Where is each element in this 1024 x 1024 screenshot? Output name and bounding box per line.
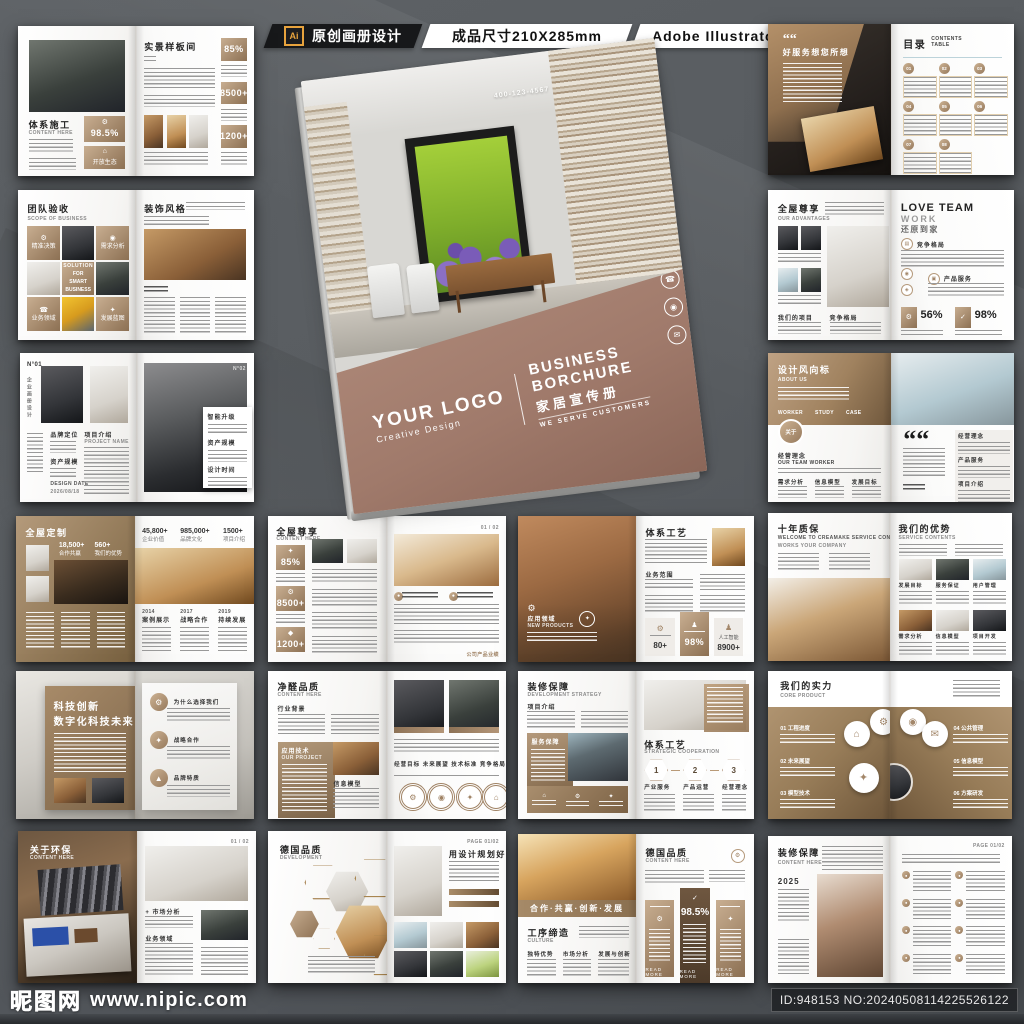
tools-icon [657,624,664,633]
text-lines [722,794,746,813]
cover-title-content: YOUR LOGO Creative Design BUSINESS BORCH… [367,339,656,461]
timeline-col [97,612,126,650]
left-title: 好服务想您所想 [783,47,850,58]
stat-card-2: 98% [680,612,710,656]
section-1-row: ▤ 竞争格局 [901,238,945,250]
drawer-item-blue [33,927,69,946]
brochure-cover-mockup: 400-123-4567 YOUR LOGO Creative Design [326,58,682,494]
card-label: 信息模型 [936,633,969,640]
title-block: BUSINESS BORCHURE 家居宣传册 WE SERVE CUSTOME… [527,340,652,428]
thumb-photo [801,268,821,292]
stat-label: 企业价值 [142,535,168,543]
page-right: 体系工艺 STRATEGIC COOPERATION 1 2 3 产业服务 产品… [636,671,754,819]
text-lines [531,749,565,783]
text-lines [449,861,499,882]
thumb-photo [26,576,50,602]
text-lines [913,871,951,891]
section-heading-lines [144,286,168,292]
quote-icon: ““ [903,432,929,448]
diagram-circle-icon: ✦ [849,763,879,793]
page-left: N°01 企业画册设计 品牌定位 资产规模 DESIGN DATE 2026/0… [20,353,137,502]
text-lines [901,250,1004,268]
text-lines [215,297,246,333]
brown-bar [449,901,499,907]
stat-label: 合作共赢 [59,549,85,557]
left-subtitle-1: WELCOME TO CREAMAKE SERVICE CONTENTS [778,535,890,541]
spread-team-acceptance: 团队验收 SCOPE OF BUSINESS 精准决策 需求分析 SOLUTIO… [18,190,254,340]
text-lines [709,870,744,882]
hex-connector [671,770,680,771]
hex-number: 3 [731,766,735,775]
left-subtitle: DEVELOPMENT STRATEGY [527,692,601,698]
tag-study: STUDY [815,410,834,416]
spread-tech-innovation: 科技创新 数字化科技未来 ⚙ 为什么选择我们 ✦ 战略合作 [16,671,254,819]
grid-photo [466,951,499,977]
page-right: PAGE 01/02 ● ● ● ● ● ● ● ● [890,836,1012,983]
band-item [561,786,594,813]
text-lines [645,539,706,562]
card-photo [899,610,932,632]
reason-label: 战略合作 [174,736,200,744]
divider [514,373,525,424]
timeline-line [394,775,499,776]
text-lines [208,477,248,488]
section-subtitle: OUR TEAM WORKER [778,460,835,466]
page-left: 设计风向标 ABOUT US WORKER STUDY CASE 关于 经营理念… [768,353,891,502]
stat-value: 85% [281,557,301,567]
stat-value: 1200+ [277,639,305,649]
text-lines [145,943,193,975]
toc-number: 02 [939,63,950,74]
col-2-label: 市场分析 [563,950,589,958]
text-lines [527,959,555,977]
spread-renovation-guarantee: 装修保障 DEVELOPMENT STRATEGY 项目介绍 服务保障 体系工艺… [518,671,754,819]
diagram-circle-icon: ⚙ [870,709,890,735]
right-title: 用设计规划好家 [449,849,506,860]
grid-photo [394,922,427,948]
card-title: 服务保障 [531,737,569,746]
left-subtitle: OUR ADVANTAGES [778,216,830,222]
card-label: 项目开发 [973,633,1006,640]
band-item [594,786,627,813]
strength-item-1: 01 工程进度 [780,724,835,743]
text-lines [936,642,969,656]
dot-icon: ● [902,954,910,962]
stat-icon-box [901,307,917,328]
tile-analysis: 需求分析 [96,226,128,260]
timeline-label-4: 竞争格局 [480,760,506,768]
strength-item-5: 05 信息模型 [953,757,1008,776]
feature-row: 产品服务 [955,454,1013,479]
solution-line: SOLUTION [63,263,93,269]
check-icon [692,895,698,902]
text-lines [144,297,175,333]
stone-wall-photo [135,548,254,603]
gear-icon [906,314,912,321]
stat-box: 98.5% [84,116,125,142]
stat-card-1: 80+ [645,618,675,656]
wardrobe-photo [90,366,127,423]
text-lines [308,956,375,974]
stat-value: 8900+ [717,643,739,652]
hex-step-3: 3 [722,759,746,781]
stat-label: 品牌文化 [180,535,209,543]
feature-3-label: 项目介绍 [958,482,984,488]
caption-lines [778,253,821,264]
interior-photo [167,115,186,148]
thumb-photo [347,539,378,562]
text-lines [829,553,870,571]
toc-number: 07 [903,139,914,150]
toc-item: 05 [939,101,971,136]
spread-cooperation-culture: 合作·共赢·创新·发展 工序缔造 CULTURE 独特优势 市场分析 发展与创新… [518,834,754,983]
caption-lines [532,800,555,806]
subtitle: CORE PRODUCT [780,693,825,699]
year-label: 持续发展 [218,615,246,624]
robot-icon [725,623,732,632]
text-lines [780,767,835,776]
text-lines [928,283,1004,298]
toc-number: 03 [974,63,985,74]
reason-label: 品牌特质 [174,774,200,782]
dot-icon: ● [955,899,963,907]
card-label: 需求分析 [899,633,932,640]
toc-entry-lines [939,114,973,136]
item-label: 方案研发 [961,791,983,797]
text-lines [394,739,499,754]
left-subtitle: SCOPE OF BUSINESS [27,216,87,222]
toc-entry-lines [939,152,973,174]
text-lines [778,553,819,571]
sea-view-room-photo [568,733,628,780]
thumb-photo [778,268,798,292]
section-2-label: 业务领域 [145,934,173,943]
section-asset: 资产规模 [50,457,78,466]
caption-band [394,727,444,733]
toc-entry-lines [974,114,1008,136]
year-col-1: 2014 案例展示 [142,609,170,624]
text-lines [953,799,1008,808]
nodes-icon: ✦ [150,731,168,749]
left-subtitle: CONTENT HERE [778,860,822,866]
text-lines [966,899,1004,919]
wide-interior-photo [144,229,245,280]
page-right: 经营目标 未来展望 技术标准 竞争格局 ⚙ ◉ ✦ ⌂ [387,671,506,819]
metric-lines [778,939,810,974]
title-line-2: 数字化科技未来 [54,713,135,728]
office-photo [827,226,889,307]
text-lines [276,614,305,624]
cover-icon-column [660,268,688,345]
text-lines [966,954,1004,974]
feature-2-label: 产品服务 [958,458,984,464]
card-title: 应用技术 [282,746,332,755]
project-card: 应用技术 OUR PROJECT [278,742,336,818]
year-label: 战略合作 [180,615,208,624]
diagram-circle-icon: ⌂ [844,721,870,747]
text-lines [903,484,925,491]
slogan-band: 合作·共赢·创新·发展 [518,900,636,918]
doc-icon: ▤ [901,238,913,250]
side-stat-3: 1200+ [221,125,247,148]
text-lines [221,109,247,121]
text-lines [581,711,628,729]
text-lines [144,56,156,61]
page-right: 45,800+ 企业价值 985,000+ 品牌文化 1500+ 项目介绍 20… [135,516,254,662]
slogan: 合作·共赢·创新·发展 [530,903,624,914]
timeline-icon-2: ◉ [427,783,455,811]
text-lines [958,442,1010,454]
card-photo [973,559,1006,581]
header-size-label: 成品尺寸210X285mm [452,26,602,46]
spread-about-environment: 关于环保 CONTENT HERE 01 / 02 + 市场分析 业务领域 [18,831,256,983]
timeline-label-2: 未来展望 [423,760,449,768]
quote-icon: ““ [783,36,797,44]
text-lines [282,764,328,812]
thumb-photo [778,226,798,250]
page-right: 德国品质 CONTENT HERE ⚙ READ MORE 98.5% READ… [636,834,754,983]
stat-label: 人工智能 [719,634,739,641]
tile-grid: 精准决策 需求分析 SOLUTION FOR SMART BUSINESS 业务… [27,226,128,331]
spread-our-strength: 我们的实力 CORE PRODUCT 01 工程进度 02 未来展望 03 模型… [768,671,1012,819]
stat-value: 18,500+ [59,542,85,549]
text-lines [683,794,714,813]
toc-subtitle-2: TABLE [931,42,962,48]
bath-photo [712,528,745,566]
preview-canvas: Ai 原创画册设计 成品尺寸210X285mm Adobe Illustrato… [0,0,1024,1024]
white-panel: ⚙ 为什么选择我们 ✦ 战略合作 ▲ 品牌特质 [142,683,237,810]
right-title: 体系工艺 [645,526,687,539]
page-right: 01 / 02 ● ● 公司产品业绩 [387,516,506,662]
phone-icon [39,307,48,314]
header-band [890,671,1012,707]
text-lines [822,846,883,870]
white-chair [367,263,405,319]
about-badge: 关于 [778,419,804,445]
hex-label-1: 产业服务 [644,783,670,791]
stat-value: 1200+ [220,131,248,141]
left-title: 装修保障 [778,846,820,859]
kitchen-photo [394,534,499,587]
page-left: 体系施工 CONTENT HERE 98.5% 开放生态 [18,26,136,176]
section-1-label: + 市场分析 [145,907,180,916]
badge-label: 关于 [785,428,796,436]
case-number-right: N°02 [233,366,246,372]
section-title: 经营理念 [778,451,806,460]
stat-value: 8500+ [220,88,248,98]
read-more: READ MORE [680,969,711,979]
left-section-1: 我们的项目 [778,313,813,322]
check-icon [960,314,966,321]
spread-german-quality-hex: 德国品质 DEVELOPMENT PAGE 01/02 用设计规划好家 [268,831,506,983]
text-lines [142,627,171,653]
text-lines [84,447,128,495]
section-1-label: 竞争格局 [917,240,945,249]
text-lines [50,441,76,453]
bottom-shade [0,1014,1024,1024]
text-lines [973,591,1006,605]
page-left: 净醛品质 CONTENT HERE 行业背景 应用技术 OUR PROJECT … [268,671,387,819]
service-item: ● [902,954,951,977]
timeline-col [61,612,90,650]
nipic-url: www.nipic.com [90,989,248,1012]
tile-business: 业务领域 [27,297,59,331]
spread-ten-year-warranty: 十年质保 WELCOME TO CREAMAKE SERVICE CONTENT… [768,513,1012,661]
toc-item: 07 [903,139,935,174]
caption-lines [650,635,671,639]
brown-panel: 科技创新 数字化科技未来 [45,686,135,810]
gear-icon [287,589,293,596]
page-left: 全屋尊享 CONTENT HERE 85% 8500+ 1200+ [268,516,387,662]
page-left: 全屋定制 18,500+ 合作共赢 560+ 我们的优势 [16,516,135,662]
section-subtitle: CULTURE [527,938,553,944]
pillar-card-1: READ MORE [645,900,673,978]
case-number-left: N°01 [27,362,42,368]
text-lines [167,785,230,798]
stat-box-3: 1200+ [276,627,305,652]
page-left: 我们的实力 CORE PRODUCT 01 工程进度 02 未来展望 03 模型… [768,671,890,819]
left-title: 团队验收 [27,202,69,215]
right-title-en-1: LOVE TEAM [901,202,974,214]
caption-lines [599,801,622,807]
col-3-label: 发展与创新 [598,950,631,958]
page-left: 团队验收 SCOPE OF BUSINESS 精准决策 需求分析 SOLUTIO… [18,190,136,340]
spread-whole-house-custom: 全屋定制 18,500+ 合作共赢 560+ 我们的优势 45,800+ 企业价… [16,516,254,662]
left-subtitle: CONTENT HERE [29,130,73,136]
info-card: 智能升级 资产规模 设计时间 [203,407,253,489]
left-stat-2: 560+ 我们的优势 [95,542,123,557]
advantage-card: 服务保证 [936,559,969,606]
spark-icon [110,307,116,314]
feature-row: 经营理念 [955,430,1013,455]
grid-photo [430,951,463,977]
text-lines [780,734,835,743]
ai-logo-icon: Ai [284,26,304,46]
title-line-1: 科技创新 [54,698,100,713]
page-left: 装修保障 CONTENT HERE 2025 [768,836,890,983]
bullet-heading [457,592,493,599]
text-lines [144,95,215,107]
dark-kitchen-photo [54,560,128,604]
service-item: ● [955,954,1004,977]
text-lines [333,788,378,810]
chart-icon: ▲ [150,769,168,787]
text-lines [936,591,969,605]
stat-value: 98.5% [681,907,709,918]
strength-item-2: 02 未来展望 [780,757,835,776]
bedroom-photo [333,742,378,775]
tile-label: 业务领域 [32,316,56,322]
text-lines [644,794,675,813]
side-stat-1: 85% [221,38,247,61]
text-lines [278,714,326,735]
solution-line: FOR [73,271,84,277]
door-photo [394,846,442,916]
curtain-room-photo [817,874,883,977]
text-lines [180,297,211,333]
text-lines [913,926,951,946]
service-item: ● [902,926,951,949]
brown-bar [449,889,499,895]
spread-clean-quality: 净醛品质 CONTENT HERE 行业背景 应用技术 OUR PROJECT … [268,671,506,819]
text-lines [830,322,882,334]
stat-box-1: 85% [276,545,305,570]
text-lines [527,711,574,729]
card-title: 智能升级 [208,412,248,421]
text-lines [649,929,670,962]
hex-label-2: 产品运营 [683,783,709,791]
stat-value: 98% [685,637,705,647]
section-label: 业务范围 [645,570,673,579]
item-label: 公共管理 [961,726,983,732]
text-lines [312,612,377,630]
page-right: PAGE 01/02 用设计规划好家 [387,831,506,983]
spread-craft-system: 应用领域 NEW PRODUCTS ✦ 体系工艺 业务范围 80+ [518,516,754,662]
page-number: 01 / 02 [481,525,499,531]
header-product-segment: Ai 原创画册设计 [264,24,423,48]
right-stat-1: 45,800+ 企业价值 [142,528,168,543]
caption-lines [778,295,821,306]
card-item-2: 设计时间 [208,465,248,474]
text-lines [913,899,951,919]
right-stat-2: 985,000+ 品牌文化 [180,528,209,543]
text-lines [201,947,247,976]
divider [903,57,1001,58]
home-icon [103,148,107,155]
page-right: ““ 经营理念 产品服务 项目介绍 [891,353,1014,502]
header-product-label: 原创画册设计 [312,26,402,46]
hex-number: 2 [693,766,697,775]
text-lines [955,330,1002,338]
toc-number: 04 [903,101,914,112]
dot-icon: ● [955,954,963,962]
photo-grid [394,922,499,977]
white-chair [406,263,440,314]
text-lines [221,152,247,166]
year-col-2: 2017 战略合作 [180,609,208,624]
toc-item: 04 [903,101,935,136]
drawer-photo [24,913,132,976]
section-2-label: 信息模型 [333,779,361,788]
solution-line: BUSINESS [65,287,91,293]
right-subtitle: STRATEGIC COOPERATION [644,749,719,755]
item-number: 04 [953,726,959,732]
stat-value: 560+ [95,542,123,549]
stat-value: 45,800+ [142,528,168,535]
site-watermark: 昵图网 www.nipic.com [10,984,248,1016]
stairs-photo [201,910,247,940]
text-lines [144,216,209,225]
gear-icon: ⚙ [731,849,745,863]
text-lines [276,573,305,583]
interior-photo [189,115,208,148]
text-lines [783,63,842,102]
text-lines [720,929,741,962]
reason-label: 为什么选择我们 [174,698,220,706]
feature-row: 项目介绍 [955,478,1013,502]
card-label: 发展目标 [899,582,932,589]
spark-icon [288,548,294,555]
target-icon [110,235,116,242]
service-item: ● [955,926,1004,949]
strength-item-4: 04 公共管理 [953,724,1008,743]
caption-band [449,727,499,733]
item-number: 05 [953,759,959,765]
spread-project-cases: N°01 企业画册设计 品牌定位 资产规模 DESIGN DATE 2026/0… [20,353,254,502]
left-subtitle: ABOUT US [778,377,807,383]
page-left: 科技创新 数字化科技未来 [16,671,135,819]
solution-line: SMART [69,279,87,285]
